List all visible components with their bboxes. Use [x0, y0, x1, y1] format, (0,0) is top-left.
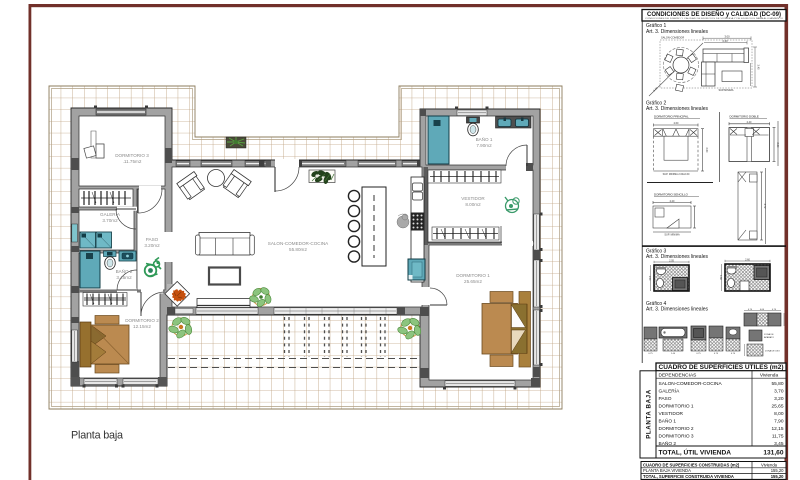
svg-text:1.60: 1.60 — [719, 275, 722, 280]
svg-text:BAÑO 1: BAÑO 1 — [659, 417, 677, 424]
svg-text:12.15m2: 12.15m2 — [133, 324, 151, 329]
svg-text:155,20: 155,20 — [771, 474, 784, 479]
svg-text:Vivienda: Vivienda — [761, 462, 778, 467]
svg-text:3,20: 3,20 — [774, 396, 784, 402]
svg-text:SALON-COMEDOR-COCINA: SALON-COMEDOR-COCINA — [268, 241, 329, 246]
svg-text:2.60: 2.60 — [745, 258, 750, 261]
svg-text:GALERIA: GALERIA — [100, 212, 121, 217]
svg-text:SUP. MINIMA 2.60x2.60: SUP. MINIMA 2.60x2.60 — [663, 173, 690, 176]
svg-text:3.20m2: 3.20m2 — [144, 243, 160, 248]
svg-text:2.20: 2.20 — [670, 200, 675, 203]
svg-text:Art. 3. Dimensiones lineales: Art. 3. Dimensiones lineales — [646, 106, 708, 112]
svg-text:DORMITORIO 2: DORMITORIO 2 — [125, 318, 159, 323]
svg-text:11,75: 11,75 — [772, 433, 784, 439]
svg-text:CUADRO DE SUPERFICIES UTILES (: CUADRO DE SUPERFICIES UTILES (m2) — [659, 364, 784, 371]
svg-text:BAÑO 2: BAÑO 2 — [116, 268, 133, 274]
svg-text:.11.75m2: .11.75m2 — [123, 159, 142, 164]
svg-text:CONDICIONES DE DISEÑO y CALIDA: CONDICIONES DE DISEÑO y CALIDAD (DC-09) — [647, 9, 781, 18]
svg-text:12,15: 12,15 — [771, 426, 783, 432]
svg-text:CONDICIONES DE DISEÑO Y CALIDA: CONDICIONES DE DISEÑO Y CALIDAD DE EDIFI… — [645, 17, 783, 20]
svg-text:PASO: PASO — [659, 396, 672, 402]
svg-text:DORMITORIO 2: DORMITORIO 2 — [659, 426, 694, 432]
svg-text:TOTAL, ÚTIL VIVIENDA: TOTAL, ÚTIL VIVIENDA — [659, 448, 732, 457]
svg-text:PLANTA BAJA VIVIENDA: PLANTA BAJA VIVIENDA — [643, 468, 691, 473]
svg-text:8,00: 8,00 — [774, 411, 784, 417]
svg-text:DORMITORIO SENCILLO: DORMITORIO SENCILLO — [654, 193, 689, 197]
svg-text:DEPENDENCIAS: DEPENDENCIAS — [659, 372, 697, 378]
svg-text:55.80m2: 55.80m2 — [289, 247, 307, 252]
svg-text:3.00: 3.00 — [724, 34, 730, 38]
svg-text:7.90m2: 7.90m2 — [476, 143, 492, 148]
svg-text:SALON-COMEDOR: SALON-COMEDOR — [661, 36, 684, 40]
svg-text:3.45: 3.45 — [757, 64, 761, 70]
svg-text:2.20: 2.20 — [776, 143, 779, 148]
svg-text:Vivienda: Vivienda — [760, 372, 779, 378]
svg-text:ZONA DE: ZONA DE — [764, 333, 774, 336]
svg-text:131,60: 131,60 — [763, 450, 784, 457]
svg-text:VESTIDOR: VESTIDOR — [461, 196, 485, 201]
svg-text:BAÑO 1: BAÑO 1 — [476, 136, 493, 142]
svg-text:DORMITORIO 3: DORMITORIO 3 — [115, 153, 149, 158]
svg-text:3,70: 3,70 — [774, 388, 784, 394]
svg-text:DORMITORIO 3: DORMITORIO 3 — [659, 433, 694, 439]
svg-text:DORMITORIO DOBLE: DORMITORIO DOBLE — [730, 114, 759, 118]
svg-text:CUADRO DE SUPERFICIES CONSTRUI: CUADRO DE SUPERFICIES CONSTRUIDAS (m2) — [643, 462, 740, 467]
svg-text:Art. 3. Dimensiones lineales: Art. 3. Dimensiones lineales — [646, 307, 708, 313]
svg-text:APARATO: APARATO — [764, 336, 774, 339]
svg-text:Art. 3. Dimensiones lineales: Art. 3. Dimensiones lineales — [646, 29, 708, 35]
svg-text:SUP.MINIMA: SUP.MINIMA — [718, 88, 733, 92]
svg-text:2.40: 2.40 — [722, 39, 728, 43]
svg-text:3.70m2: 3.70m2 — [102, 218, 118, 223]
svg-text:8.00m2: 8.00m2 — [465, 202, 481, 207]
svg-text:25,65: 25,65 — [771, 403, 783, 409]
svg-text:DORMITORIO 1: DORMITORIO 1 — [456, 273, 490, 278]
svg-text:1.50: 1.50 — [648, 276, 651, 281]
svg-text:DORMITORIO PRINCIPAL: DORMITORIO PRINCIPAL — [654, 114, 689, 118]
svg-text:4.72: 4.72 — [763, 204, 766, 209]
svg-text:Art. 3. Dimensiones lineales: Art. 3. Dimensiones lineales — [646, 254, 708, 260]
svg-text:155,20: 155,20 — [771, 468, 784, 473]
svg-text:SALON-COMEDOR-COCINA: SALON-COMEDOR-COCINA — [659, 381, 723, 387]
svg-text:SUP. MINIMA: SUP. MINIMA — [664, 234, 680, 237]
svg-text:ZONA DE USO: ZONA DE USO — [765, 350, 780, 353]
svg-text:PASO: PASO — [146, 237, 159, 242]
svg-text:PLANTA BAJA: PLANTA BAJA — [646, 389, 653, 439]
svg-text:55,80: 55,80 — [771, 381, 783, 387]
svg-text:2.05: 2.05 — [669, 259, 674, 262]
svg-text:2.60: 2.60 — [674, 122, 679, 125]
svg-text:GALERÍA: GALERÍA — [659, 387, 681, 394]
svg-text:BAÑO 2: BAÑO 2 — [659, 440, 677, 447]
svg-text:Planta baja: Planta baja — [71, 430, 123, 442]
svg-text:2.40: 2.40 — [747, 121, 752, 124]
svg-text:3.45m2: 3.45m2 — [116, 275, 132, 280]
svg-text:2.60: 2.60 — [705, 148, 708, 153]
svg-text:25.65m2: 25.65m2 — [464, 279, 482, 284]
svg-text:3,45: 3,45 — [774, 441, 784, 447]
svg-text:7,90: 7,90 — [774, 418, 784, 424]
svg-text:VESTIDOR: VESTIDOR — [659, 411, 684, 417]
svg-text:DORMITORIO 1: DORMITORIO 1 — [659, 403, 694, 409]
svg-text:TOTAL, SUPERFICIE CONSTRUIDA V: TOTAL, SUPERFICIE CONSTRUIDA VIVIENDA — [643, 474, 734, 479]
